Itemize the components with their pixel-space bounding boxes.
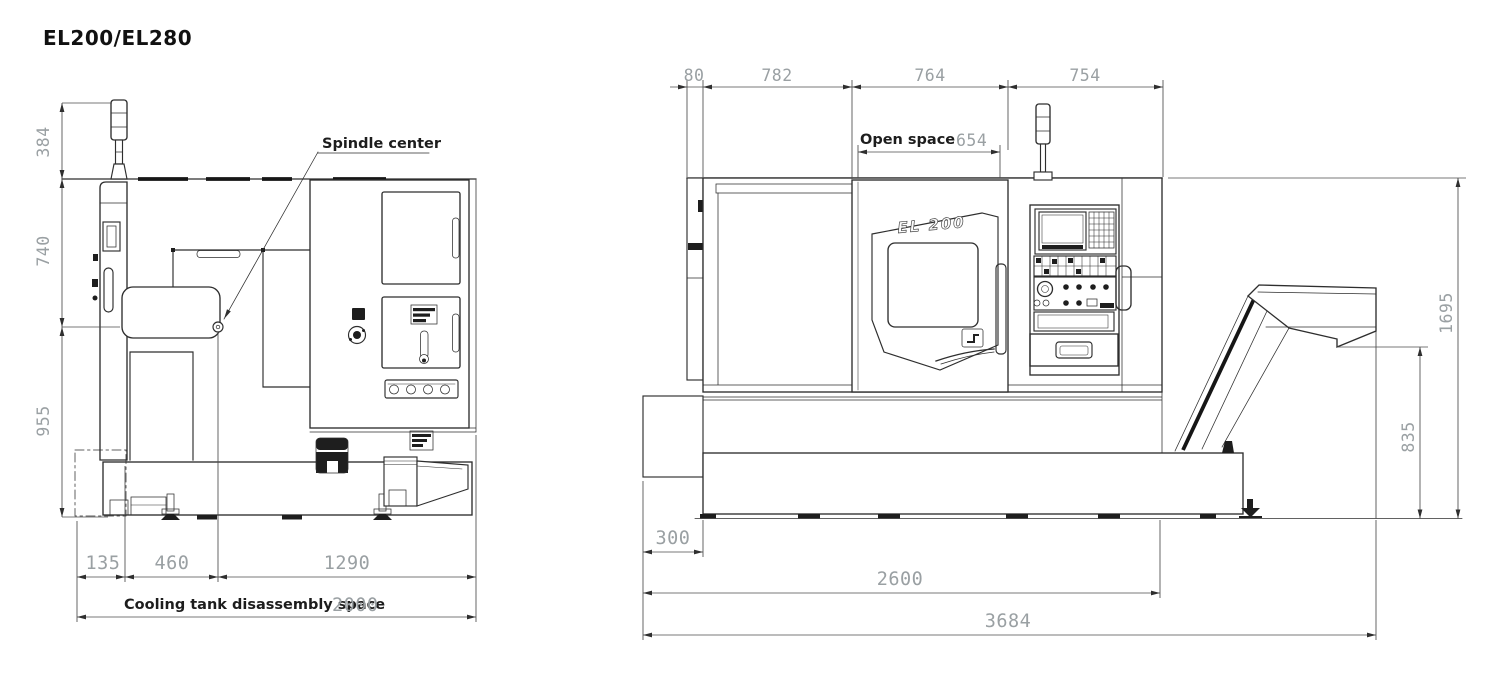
- dim-460-text: 460: [155, 553, 190, 574]
- left-view: Spindle center: [34, 100, 476, 622]
- machine-base: [75, 431, 472, 520]
- dim-3684-text: 3684: [985, 611, 1032, 632]
- dim-764-text: 764: [914, 66, 945, 85]
- dim-835-text: 835: [1399, 421, 1418, 452]
- conveyor-discharge-box: [1248, 285, 1376, 347]
- signal-tower: [1034, 104, 1052, 180]
- machine-base: [643, 392, 1462, 519]
- open-space-label: Open space: [860, 132, 955, 148]
- headstock-cover: [122, 287, 220, 338]
- door-window: [888, 243, 978, 327]
- power-switch: [352, 308, 365, 320]
- dim-782-text: 782: [761, 66, 792, 85]
- sliding-door: EL 200: [852, 180, 1008, 392]
- dim-384-text: 384: [34, 126, 53, 157]
- page-title: EL200/EL280: [43, 26, 192, 50]
- dim-754-text: 754: [1069, 66, 1100, 85]
- dim-1290-text: 1290: [324, 553, 371, 574]
- base-vent: [410, 431, 433, 450]
- dim-80-text: 80: [684, 66, 705, 85]
- headstock-pedestal: [130, 352, 193, 460]
- right-view: EL 200: [643, 66, 1466, 640]
- dim-135-text: 135: [86, 553, 121, 574]
- dim-300-text: 300: [656, 528, 691, 549]
- dim-654-text: 654: [956, 131, 987, 150]
- spindle-center-label: Spindle center: [322, 136, 442, 152]
- dim-2600-text: 2600: [877, 569, 924, 590]
- signal-tower: [111, 100, 127, 179]
- cnc-control-pendant: [1030, 205, 1131, 375]
- drawing-sheet: EL200/EL280: [0, 0, 1487, 674]
- coolant-tank-handle: [643, 396, 703, 477]
- dim-740-text: 740: [34, 235, 53, 266]
- left-end-panel: [687, 178, 703, 380]
- dim-1695-text: 1695: [1437, 292, 1456, 334]
- dim-2000-text: 2000: [332, 595, 379, 616]
- dim-955-text: 955: [34, 405, 53, 436]
- back-panel: [310, 180, 476, 432]
- coolant-pump: [316, 438, 348, 473]
